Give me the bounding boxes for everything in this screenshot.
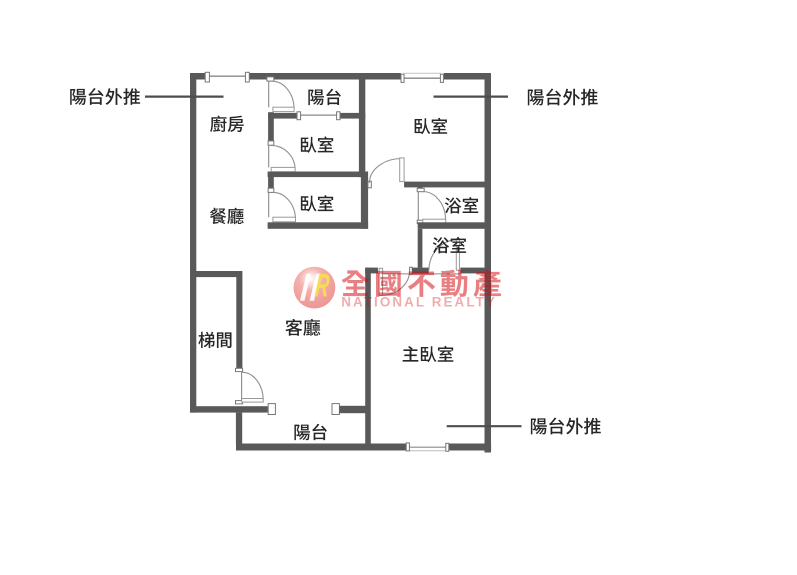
svg-text:NATIONAL REALTY: NATIONAL REALTY [341,295,497,310]
